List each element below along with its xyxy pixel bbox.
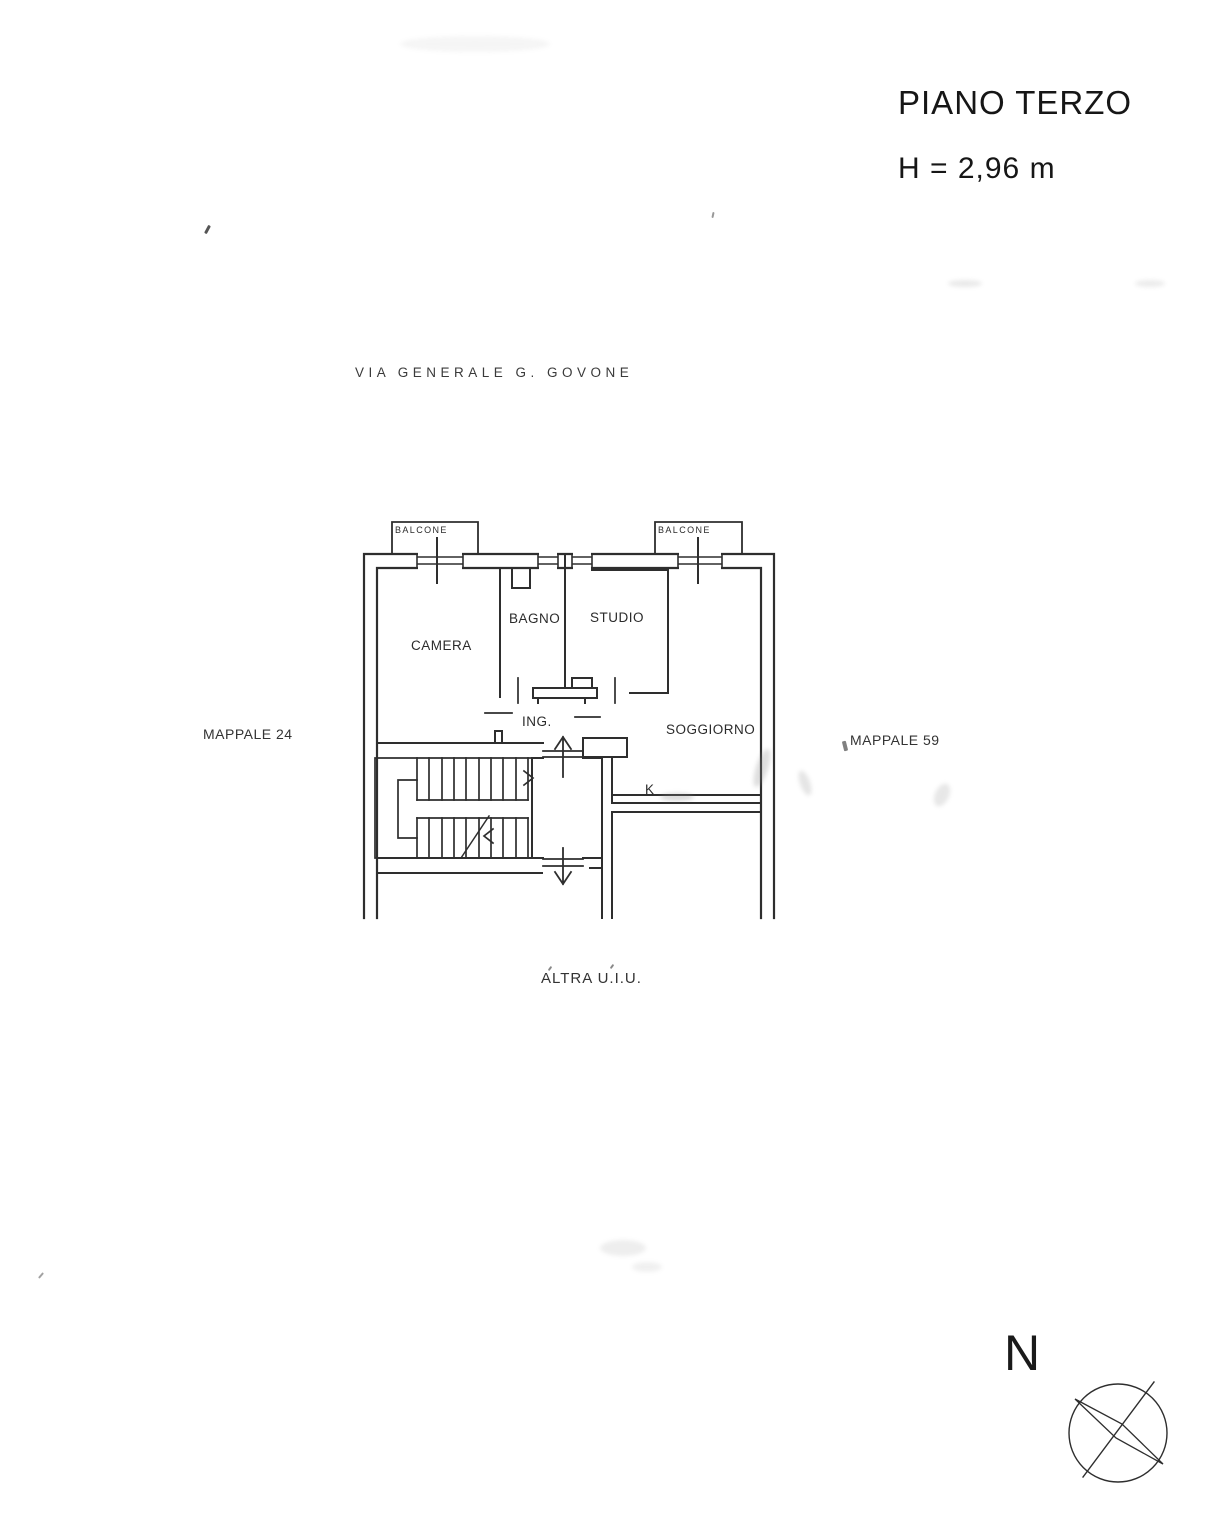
floor-plan-drawing	[0, 0, 1224, 1536]
room-label-soggiorno: SOGGIORNO	[666, 723, 755, 737]
room-label-studio: STUDIO	[590, 611, 644, 625]
scanned-floor-plan-page: PIANO TERZO H = 2,96 m VIA GENERALE G. G…	[0, 0, 1224, 1536]
entry-arrows	[555, 737, 571, 884]
north-letter: N	[1004, 1328, 1040, 1378]
floor-title: PIANO TERZO	[898, 86, 1132, 119]
parcel-label-left: MAPPALE 24	[203, 727, 293, 741]
other-unit-label: ALTRA U.I.U.	[541, 971, 642, 986]
compass-rose	[1069, 1382, 1167, 1482]
street-label: VIA GENERALE G. GOVONE	[355, 366, 633, 380]
compass-needle	[1075, 1399, 1163, 1464]
door-symbols	[485, 678, 615, 866]
compass-circle	[1069, 1384, 1167, 1482]
room-label-balcone-left: BALCONE	[395, 526, 448, 535]
room-label-bagno: BAGNO	[509, 612, 560, 626]
room-label-camera: CAMERA	[411, 639, 472, 653]
staircase	[375, 758, 533, 858]
ceiling-height-note: H = 2,96 m	[898, 154, 1056, 184]
compass-cross-line	[1083, 1382, 1154, 1477]
room-label-cucina: K	[645, 783, 655, 797]
parcel-label-right: MAPPALE 59	[850, 733, 940, 747]
room-label-balcone-right: BALCONE	[658, 526, 711, 535]
interior-walls	[377, 556, 761, 918]
room-label-ingresso: ING.	[522, 715, 552, 729]
window-symbols	[417, 554, 722, 568]
